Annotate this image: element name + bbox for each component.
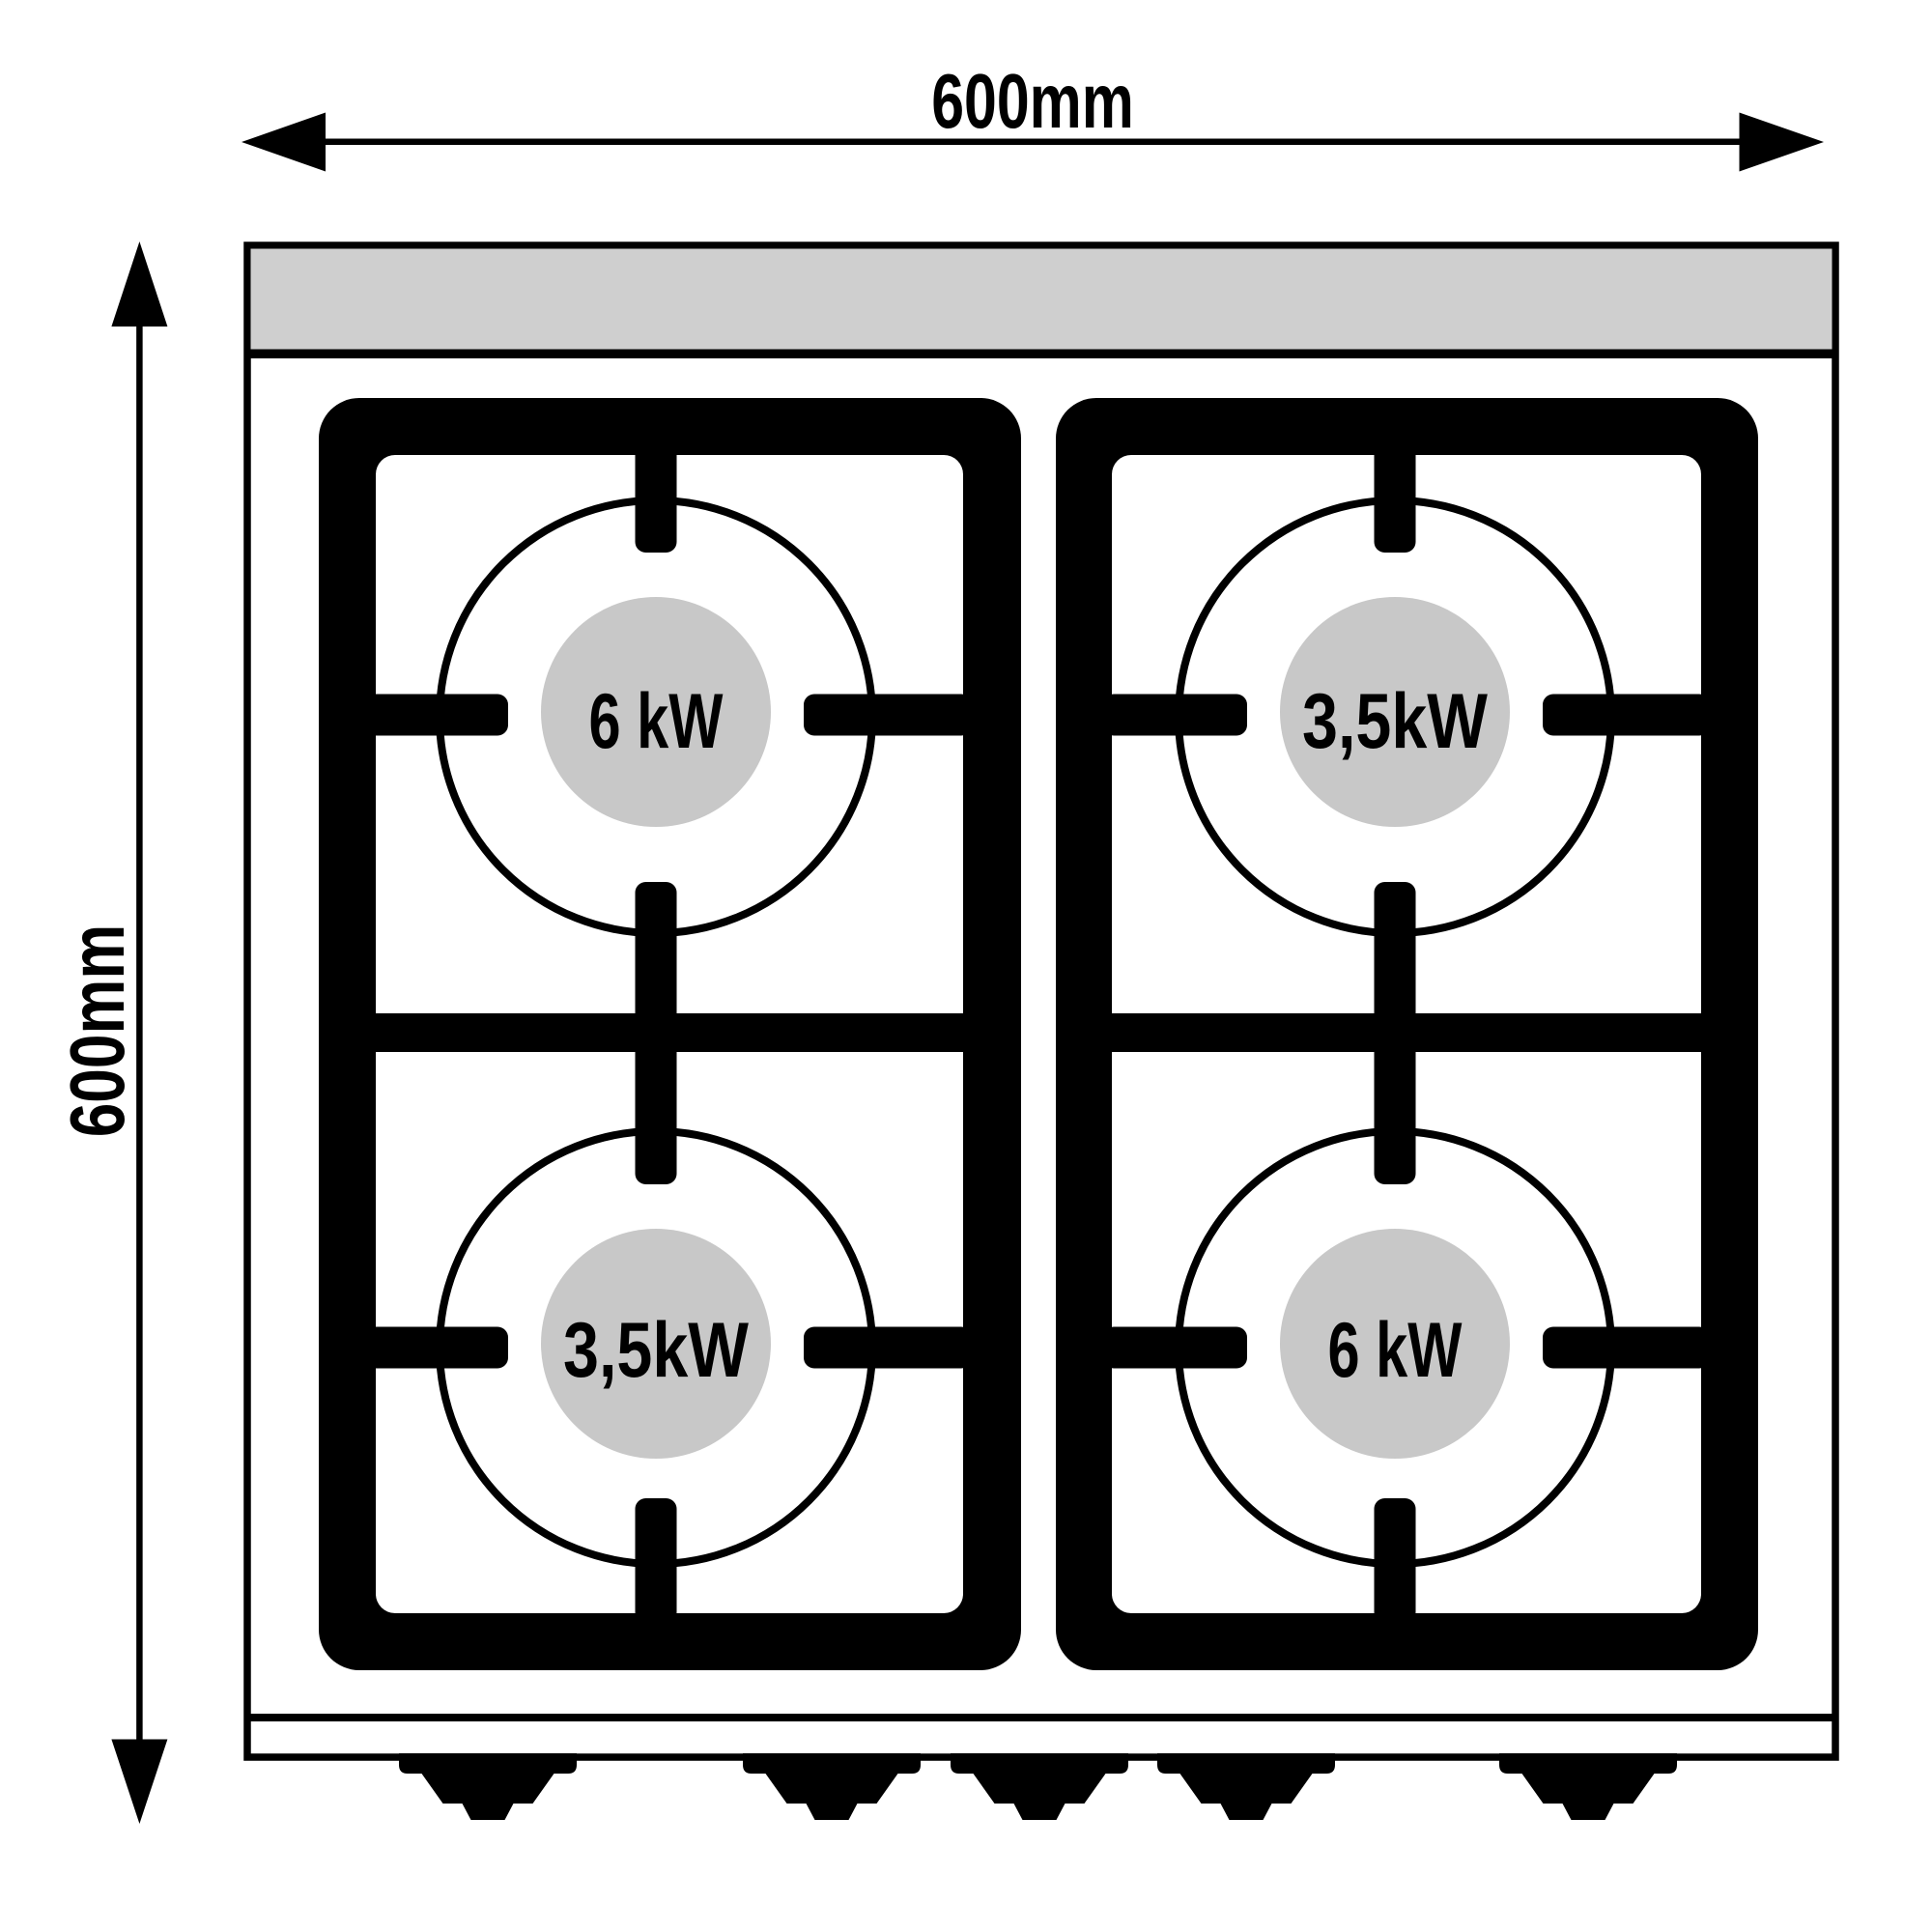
svg-text:600mm: 600mm <box>931 59 1134 145</box>
svg-text:600mm: 600mm <box>54 924 140 1138</box>
svg-text:3,5kW: 3,5kW <box>1302 677 1488 765</box>
svg-text:6 kW: 6 kW <box>1328 1307 1463 1394</box>
svg-text:3,5kW: 3,5kW <box>563 1306 749 1394</box>
svg-text:6 kW: 6 kW <box>589 678 724 765</box>
